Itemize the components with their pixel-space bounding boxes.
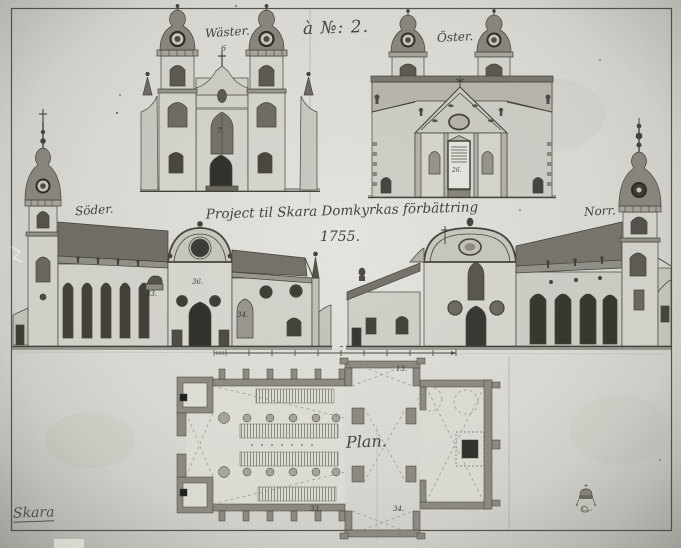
annotation-number: 7.: [217, 128, 224, 135]
annotation-number: 33.: [310, 506, 321, 513]
annotation-number: 33.: [146, 291, 157, 298]
annotation-number: 13.: [396, 366, 407, 373]
label-south-elevation: Söder.: [75, 203, 114, 218]
label-floor-plan: Plan.: [346, 433, 387, 450]
drawing-year: 1755.: [300, 230, 380, 244]
label-east-elevation: Öster.: [437, 30, 474, 44]
archive-mark: Skara: [13, 505, 55, 522]
label-west-elevation: Wäster.: [205, 24, 250, 39]
photo-vignette: [0, 0, 681, 548]
photograph-of-drawing: à №: 2. Wäster. Öster. Project til Skara…: [0, 0, 681, 548]
annotation-number: 26.: [452, 168, 462, 174]
sheet-number: à №: 2.: [303, 19, 370, 38]
annotation-number: 34.: [237, 312, 248, 319]
annotation-number: 36.: [192, 279, 203, 286]
label-north-elevation: Norr.: [584, 204, 616, 218]
annotation-number: 6: [221, 45, 226, 53]
architectural-drawing: [0, 0, 681, 548]
annotation-number: 34.: [393, 506, 404, 513]
